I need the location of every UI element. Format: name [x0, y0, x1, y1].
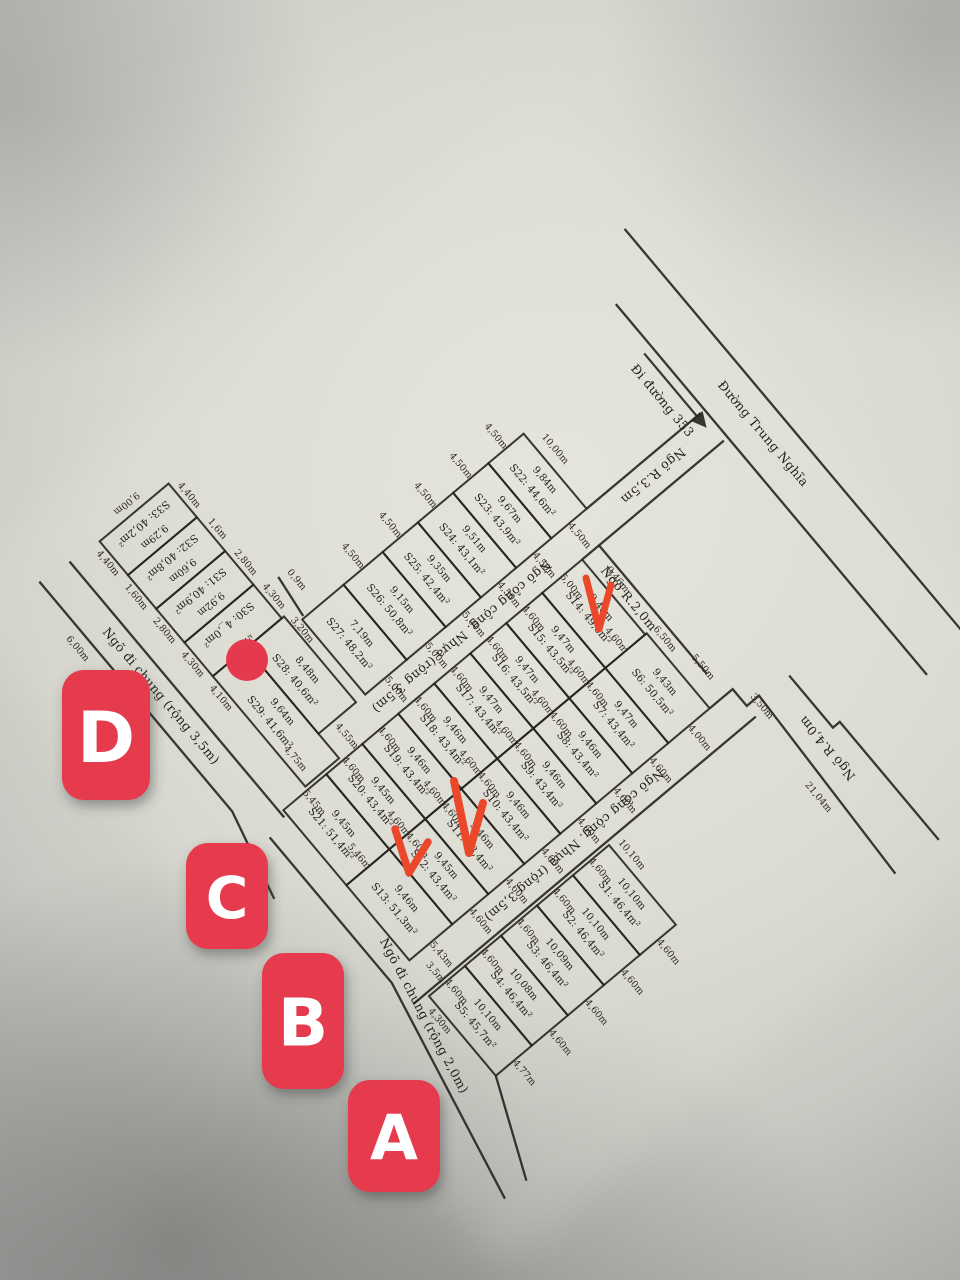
marker-c-letter: C	[206, 864, 249, 932]
marker-b: B	[262, 953, 344, 1089]
plan-svg: S22: 44,6m²9,84m4,50m4,50mS23: 43,9m²9,6…	[0, 0, 960, 1280]
cadastral-plan-photo: S22: 44,6m²9,84m4,50m4,50mS23: 43,9m²9,6…	[0, 0, 960, 1280]
marker-c: C	[186, 843, 268, 949]
marker-a: A	[348, 1080, 440, 1192]
marker-b-letter: B	[278, 985, 328, 1062]
marker-a-letter: A	[370, 1102, 418, 1175]
red-dot-marker	[226, 639, 268, 681]
marker-d-letter: D	[77, 697, 135, 779]
marker-d: D	[62, 670, 150, 800]
